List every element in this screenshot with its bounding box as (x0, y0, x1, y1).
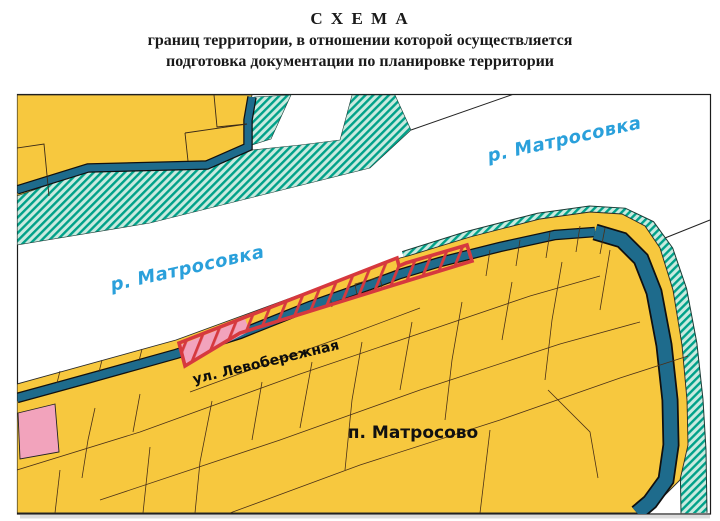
pink-parcel (18, 404, 59, 459)
map-svg: р. Матросовка р. Матросовка ул. Левобере… (0, 0, 720, 521)
schema-page: С Х Е М А границ территории, в отношении… (0, 0, 720, 521)
scan-artifact-line (20, 515, 710, 519)
settlement-label: п. Матросово (348, 423, 478, 443)
map-area: р. Матросовка р. Матросовка ул. Левобере… (0, 0, 720, 521)
